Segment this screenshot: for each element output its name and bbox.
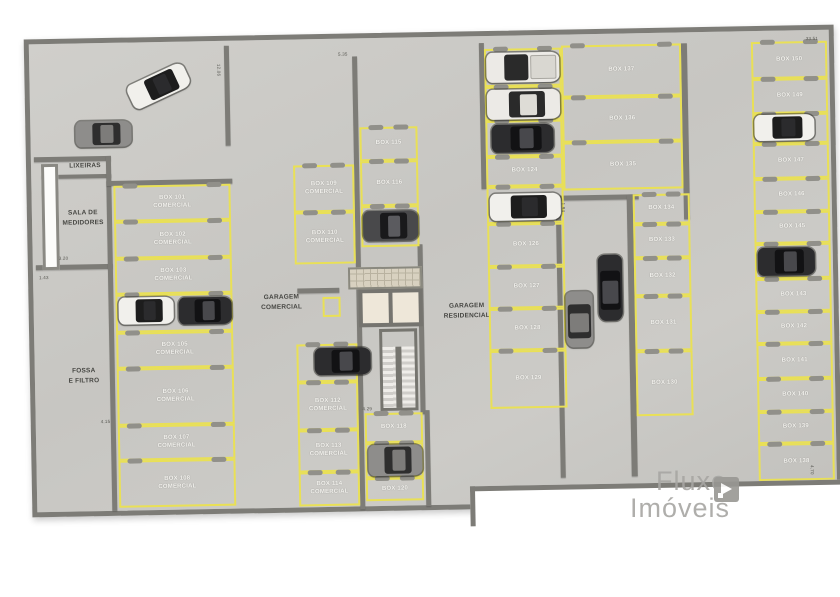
dimension-label: 4.29 bbox=[362, 406, 372, 411]
box-140: BOX 140 bbox=[757, 378, 834, 412]
box-116: BOX 116 bbox=[360, 160, 419, 206]
box-128: BOX 128 bbox=[489, 308, 567, 351]
watermark-line2: Imóveis bbox=[630, 493, 778, 524]
box-103: BOX 103 COMERCIAL bbox=[115, 257, 233, 295]
box-102: BOX 102 COMERCIAL bbox=[114, 220, 232, 259]
box-145: BOX 145 bbox=[754, 211, 831, 244]
box-112: BOX 112 COMERCIAL bbox=[297, 381, 359, 430]
box-110: BOX 110 COMERCIAL bbox=[294, 211, 356, 264]
box-115: BOX 115 bbox=[359, 126, 418, 161]
box-101: BOX 101 COMERCIAL bbox=[113, 184, 231, 222]
car-icon bbox=[368, 444, 423, 476]
fluxo-imoveis-logo-icon bbox=[714, 477, 739, 502]
box-120: BOX 120 bbox=[366, 477, 424, 501]
room-label-sala-medidores: SALA DE MEDIDORES bbox=[57, 208, 109, 228]
dimension-label: 5.35 bbox=[338, 52, 348, 57]
box-142: BOX 142 bbox=[756, 311, 833, 344]
storage-nook bbox=[322, 297, 340, 317]
car-icon bbox=[363, 210, 419, 241]
car-icon bbox=[314, 347, 370, 375]
room-label-lixeiras: LIXEIRAS bbox=[60, 161, 110, 172]
watermark: Fluxo Imóveis bbox=[628, 466, 778, 524]
dimension-label: 3.20 bbox=[59, 256, 69, 261]
car-icon bbox=[565, 291, 593, 347]
car-icon bbox=[598, 255, 623, 321]
box-105: BOX 105 COMERCIAL bbox=[116, 331, 234, 369]
stair-divider bbox=[396, 347, 402, 408]
garagem-comercial-label: GARAGEM COMERCIAL bbox=[241, 292, 321, 313]
box-136: BOX 136 bbox=[562, 95, 683, 142]
pickup-truck-icon bbox=[486, 52, 560, 83]
box-139: BOX 139 bbox=[758, 411, 835, 444]
dimension-label: 33.51 bbox=[806, 36, 818, 41]
car-icon bbox=[758, 247, 816, 276]
box-127: BOX 127 bbox=[488, 266, 566, 309]
car-icon bbox=[75, 121, 131, 148]
car-icon bbox=[178, 297, 231, 325]
box-113: BOX 113 COMERCIAL bbox=[298, 429, 360, 472]
box-146: BOX 146 bbox=[753, 178, 830, 212]
box-131: BOX 131 bbox=[634, 295, 692, 351]
box-109: BOX 109 COMERCIAL bbox=[293, 164, 355, 212]
box-143: BOX 143 bbox=[755, 278, 832, 312]
stairs bbox=[379, 328, 418, 411]
dimension-label: 12.06 bbox=[216, 64, 221, 76]
elevator-lobby bbox=[348, 266, 422, 289]
dimension-label: 1.94 bbox=[561, 203, 566, 213]
car-icon bbox=[491, 124, 554, 153]
car-icon bbox=[118, 297, 173, 325]
car-icon bbox=[754, 114, 814, 141]
box-106: BOX 106 COMERCIAL bbox=[117, 367, 235, 426]
dimension-label: 4.70 bbox=[810, 465, 815, 475]
box-150: BOX 150 bbox=[751, 41, 828, 79]
box-132: BOX 132 bbox=[634, 257, 692, 296]
box-147: BOX 147 bbox=[753, 143, 830, 179]
box-134: BOX 134 bbox=[633, 193, 691, 224]
box-130: BOX 130 bbox=[636, 350, 694, 416]
box-135: BOX 135 bbox=[563, 140, 684, 190]
box-149: BOX 149 bbox=[752, 78, 829, 114]
car-icon bbox=[487, 89, 561, 120]
dimension-label: 1.43 bbox=[39, 275, 49, 280]
box-133: BOX 133 bbox=[633, 223, 691, 258]
box-137: BOX 137 bbox=[561, 43, 682, 97]
car-icon bbox=[490, 193, 561, 221]
dimension-label: 4.15 bbox=[101, 419, 111, 424]
box-108: BOX 108 COMERCIAL bbox=[118, 459, 236, 508]
floor-plan: LIXEIRAS SALA DE MEDIDORES FOSSA E FILTR… bbox=[24, 25, 840, 518]
box-114: BOX 114 COMERCIAL bbox=[299, 471, 361, 506]
box-129: BOX 129 bbox=[489, 350, 567, 409]
elevators bbox=[358, 288, 423, 327]
floor-plan-image: LIXEIRAS SALA DE MEDIDORES FOSSA E FILTR… bbox=[0, 0, 840, 597]
box-141: BOX 141 bbox=[756, 343, 833, 379]
box-126: BOX 126 bbox=[487, 223, 565, 267]
box-118: BOX 118 bbox=[365, 412, 424, 443]
box-107: BOX 107 COMERCIAL bbox=[118, 424, 236, 461]
room-label-fossa-filtro: FOSSA E FILTRO bbox=[58, 366, 110, 386]
box-124: BOX 124 bbox=[486, 156, 564, 187]
